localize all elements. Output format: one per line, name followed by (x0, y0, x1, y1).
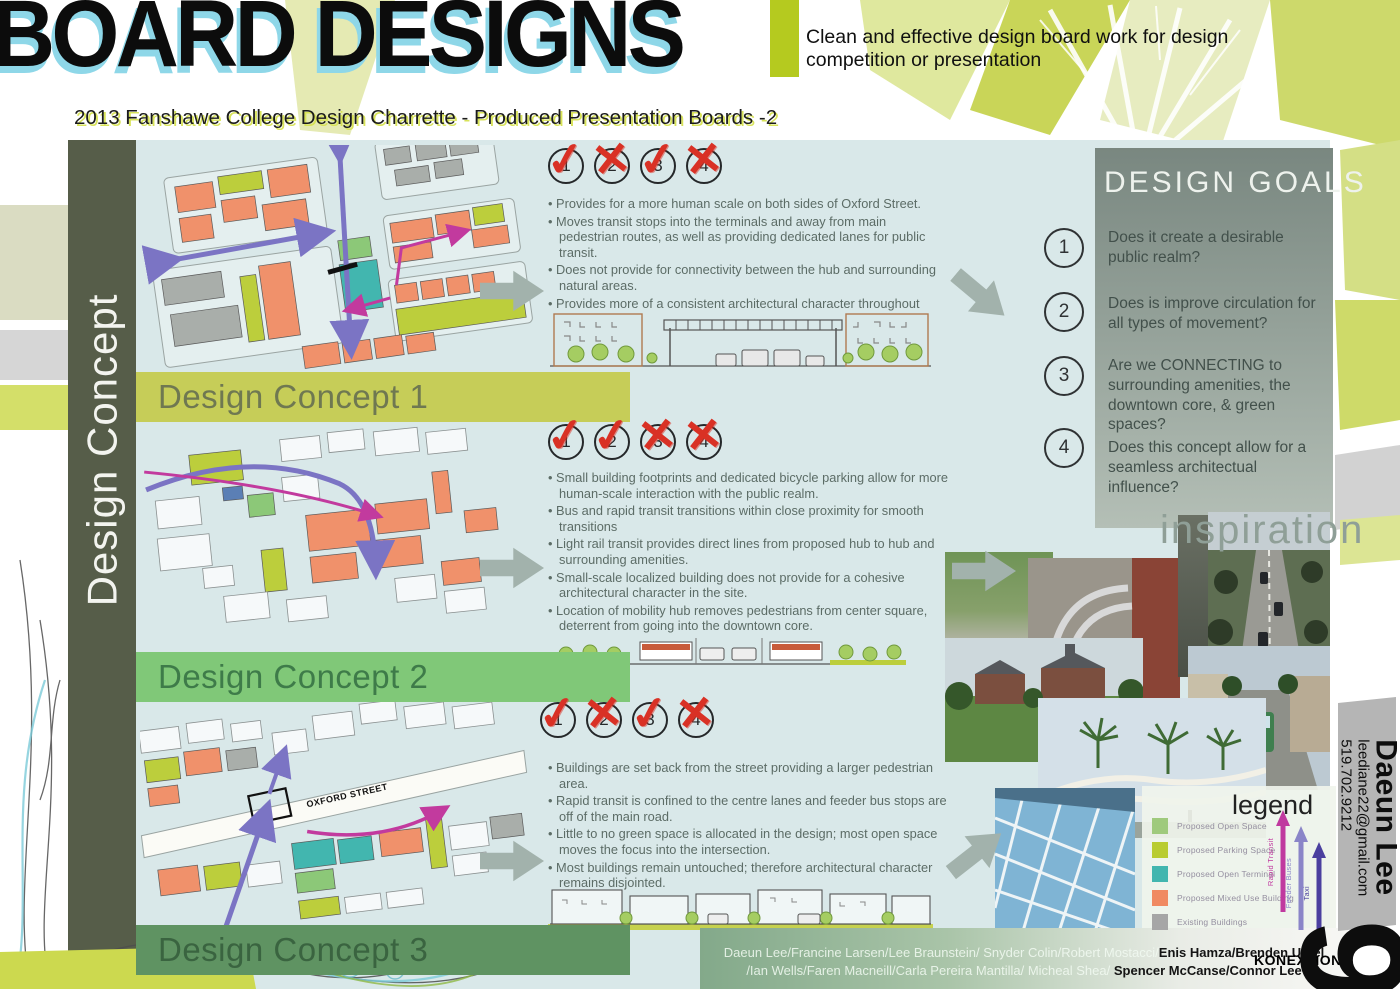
concept3-banner-label: Design Concept 3 (158, 931, 428, 969)
left-margin-decor-olive (0, 205, 68, 320)
sidebar-label-text: Design Concept (78, 294, 126, 607)
goal-mark: 1✓ (548, 424, 584, 460)
goal-number-2: 2 (1044, 292, 1084, 332)
goal-mark: 3✓ (632, 702, 668, 738)
concept1-banner-label: Design Concept 1 (158, 378, 428, 416)
left-margin-decor-gray (0, 330, 68, 380)
concept3-banner: Design Concept 3 (136, 925, 630, 975)
goal-mark: 1✓ (548, 148, 584, 184)
bullet: Provides for a more human scale on both … (548, 196, 940, 212)
concept1-bullets: Provides for a more human scale on both … (548, 196, 940, 313)
legend-item: Proposed Open Terminal (1152, 866, 1275, 882)
credits-line-1: Daeun Lee/Francine Larsen/Lee Braunstein… (700, 944, 1348, 962)
taxi-arrow-label: Taxi (1302, 886, 1311, 901)
goal-question-2: Does is improve circulation for all type… (1108, 294, 1326, 334)
goal-number-1: 1 (1044, 228, 1084, 268)
bullet: Rapid transit is confined to the centre … (548, 793, 948, 824)
mark-glyph: ✕ (673, 684, 718, 742)
credits-line-2: /Ian Wells/Faren Macneill/Carla Pereira … (700, 962, 1348, 980)
mark-glyph: ✓ (535, 684, 580, 742)
contact-phone: 519.702.9212 (1336, 740, 1353, 897)
bullet: Location of mobility hub removes pedestr… (548, 603, 948, 634)
mark-glyph: ✕ (681, 130, 726, 188)
bullet: Does not provide for connectivity betwee… (548, 262, 940, 293)
legend-label: Proposed Open Terminal (1177, 869, 1275, 879)
concept3-map: OXFORD STREET (140, 700, 530, 925)
contact-name: Daeun Lee (1370, 740, 1400, 897)
bullet: Bus and rapid transit transitions within… (548, 503, 948, 534)
feeder-buses-arrow (1294, 826, 1308, 930)
bullet: Small-scale localized building does not … (548, 570, 948, 601)
mark-glyph: ✓ (627, 684, 672, 742)
goal-question-1: Does it create a desirable public realm? (1108, 228, 1326, 268)
legend-item: Proposed Parking Space (1152, 842, 1275, 858)
goal-mark: 2✓ (594, 424, 630, 460)
mark-glyph: ✕ (635, 406, 680, 464)
accent-bar (770, 0, 799, 77)
mark-glyph: ✓ (635, 130, 680, 188)
legend-label: Proposed Parking Space (1177, 845, 1275, 855)
photo-glass-roof (995, 788, 1135, 938)
inspiration-title: inspiration (1160, 508, 1364, 553)
tagline: Clean and effective design board work fo… (806, 26, 1266, 73)
legend-item: Proposed Open Space (1152, 818, 1267, 834)
left-margin-decor-lime (0, 385, 68, 430)
goal-mark: 4✕ (686, 424, 722, 460)
subtitle: 2013 Fanshawe College Design Charrette -… (74, 106, 777, 130)
bullet: Provides more of a consistent architectu… (548, 296, 940, 312)
sidebar-vertical-label: Design Concept (68, 150, 136, 750)
bullet: Most buildings remain untouched; therefo… (548, 860, 948, 891)
goal-mark: 1✓ (540, 702, 576, 738)
goal-mark: 4✕ (678, 702, 714, 738)
mark-glyph: ✕ (581, 684, 626, 742)
page-title: BOARD DESIGNS (0, 0, 682, 89)
legend-title: legend (1232, 790, 1313, 821)
goal-number-3: 3 (1044, 356, 1084, 396)
legend-swatch-open-space (1152, 818, 1168, 834)
legend-swatch-existing (1152, 914, 1168, 930)
bullet: Little to no green space is allocated in… (548, 826, 948, 857)
goal-mark: 4✕ (686, 148, 722, 184)
rapid-transit-arrow-label: Rapid Transit (1266, 838, 1275, 886)
goal-mark: 3✕ (640, 424, 676, 460)
mark-glyph: ✕ (589, 130, 634, 188)
concept2-goal-marks: 1✓ 2✓ 3✕ 4✕ (548, 424, 722, 460)
concept3-bullets: Buildings are set back from the street p… (548, 760, 948, 893)
concept1-goal-marks: 1✓ 2✕ 3✓ 4✕ (548, 148, 722, 184)
concept1-street-section (548, 306, 933, 372)
feeder-buses-arrow-label: Feeder Buses (1284, 858, 1293, 908)
board-number: 9 (1279, 919, 1400, 989)
legend-swatch-terminal (1152, 866, 1168, 882)
goal-mark: 2✕ (594, 148, 630, 184)
design-board-page: BOARD DESIGNS Clean and effective design… (0, 0, 1400, 989)
credits: Daeun Lee/Francine Larsen/Lee Braunstein… (700, 944, 1348, 979)
concept2-banner-label: Design Concept 2 (158, 658, 428, 696)
legend-swatch-mixed-use (1152, 890, 1168, 906)
concept2-map (140, 425, 520, 650)
legend-label: Proposed Open Space (1177, 821, 1267, 831)
goal-number-4: 4 (1044, 428, 1084, 468)
mark-glyph: ✓ (543, 130, 588, 188)
goal-question-4: Does this concept allow for a seamless a… (1108, 438, 1326, 497)
design-goals-title: DESIGN GOALS (1104, 166, 1367, 200)
bullet: Light rail transit provides direct lines… (548, 536, 948, 567)
bullet: Buildings are set back from the street p… (548, 760, 948, 791)
legend-swatch-parking (1152, 842, 1168, 858)
concept1-map (140, 145, 535, 370)
legend-item: Proposed Mixed Use Building (1152, 890, 1294, 906)
legend-label: Existing Buildings (1177, 917, 1247, 927)
mark-glyph: ✓ (589, 406, 634, 464)
contact-email: leediane22@gmail.com (1353, 740, 1370, 897)
mark-glyph: ✓ (543, 406, 588, 464)
concept2-bullets: Small building footprints and dedicated … (548, 470, 948, 636)
goal-question-3: Are we CONNECTING to surrounding ameniti… (1108, 356, 1326, 435)
bullet: Moves transit stops into the terminals a… (548, 214, 940, 261)
bullet: Small building footprints and dedicated … (548, 470, 948, 501)
goal-mark: 3✓ (640, 148, 676, 184)
legend-item: Existing Buildings (1152, 914, 1247, 930)
mark-glyph: ✕ (681, 406, 726, 464)
goal-mark: 2✕ (586, 702, 622, 738)
concept3-goal-marks: 1✓ 2✕ 3✓ 4✕ (540, 702, 714, 738)
contact-block: Daeun Lee leediane22@gmail.com 519.702.9… (1318, 688, 1400, 948)
